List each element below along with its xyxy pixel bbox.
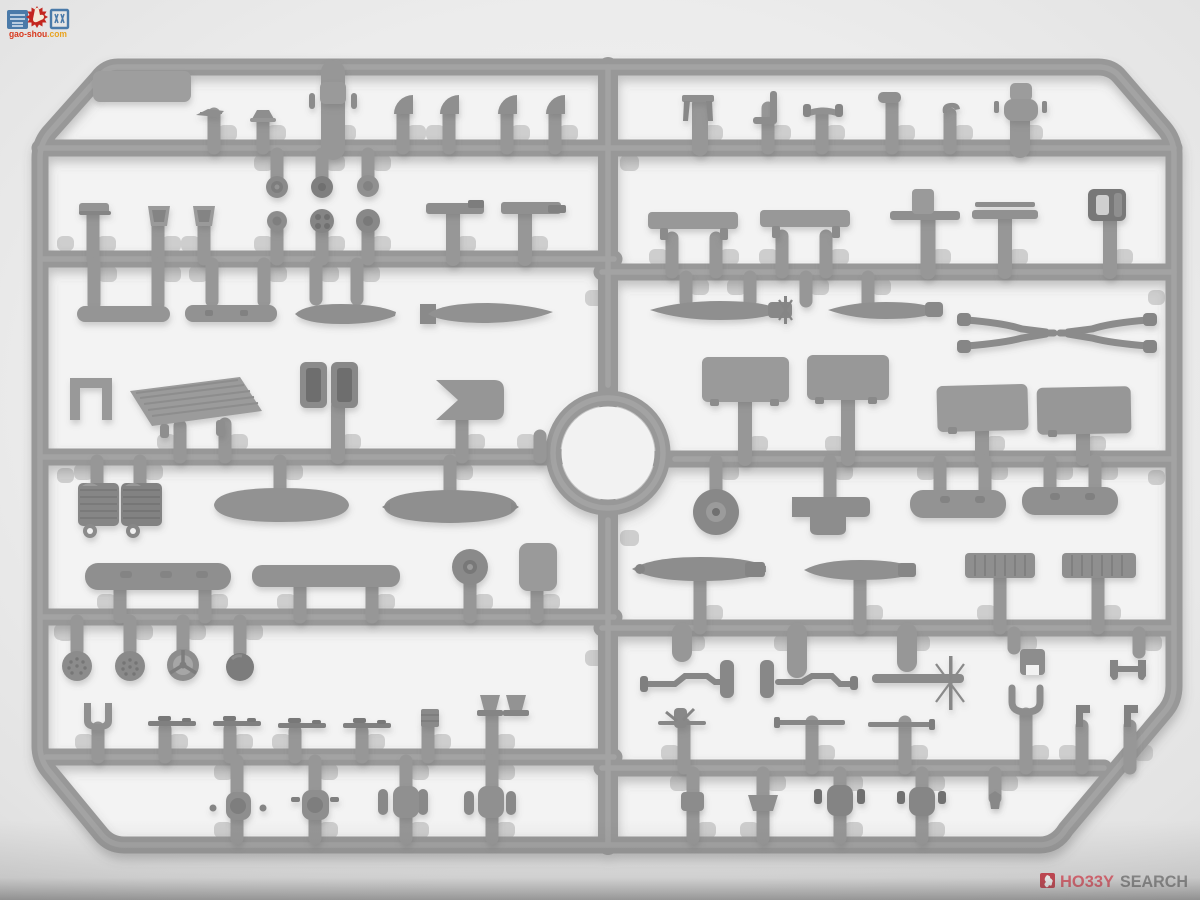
svg-text:gao-shou.com: gao-shou.com bbox=[9, 29, 67, 40]
